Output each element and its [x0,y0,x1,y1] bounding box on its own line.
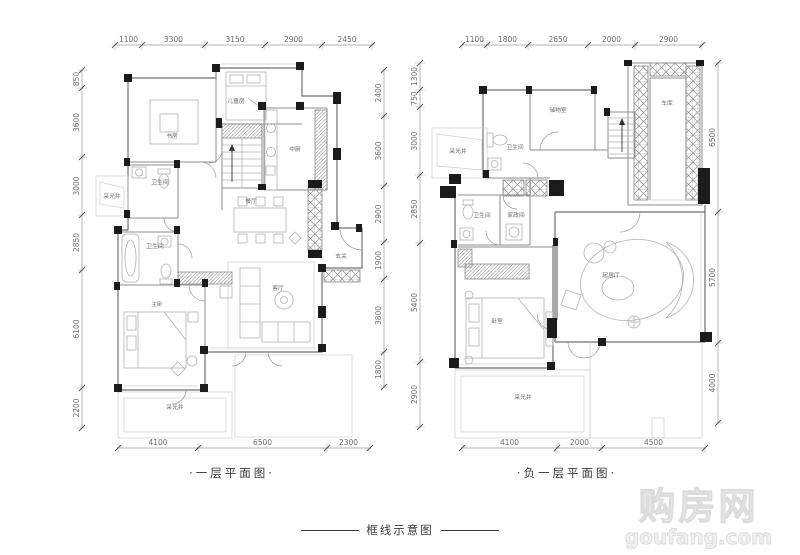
dim-label: 2850 [72,233,81,252]
dim-label: 4100 [148,438,167,447]
bathtub-icon [122,234,139,282]
floorplan-page: 1100330031502900245085036003000285061002… [0,0,800,555]
room-label: 卫生间 [151,178,169,186]
dim-label: 2900 [284,35,303,44]
terrace-outline [235,355,352,437]
basement-floor-caption: ·负一层平面图· [457,465,677,481]
room-label: 儿童房 [227,97,245,105]
dim-label: 750 [410,91,419,106]
dim-label: 2650 [548,35,567,44]
frame-caption-text: 框线示意图 [366,522,434,538]
dim-label: 3000 [72,176,81,195]
first-floor-caption: ·一层平面图· [122,465,342,481]
watermark-url: goufang.com [625,527,772,547]
dim-label: 2000 [602,35,621,44]
basement-light-well-bottom [455,370,590,438]
dim-label: 2900 [374,204,383,223]
kitchen-cabinet-hatch [315,110,327,190]
room-label: 采光井 [103,192,121,200]
dim-label: 850 [72,72,81,87]
dim-label: 3300 [164,35,183,44]
dim-label: 2400 [374,83,383,102]
sunken-courtyard [590,342,702,438]
master-bed [124,312,198,376]
room-label: 卧室 [491,317,503,325]
watermark-cn: 购房网 [625,488,772,525]
room-label: 起居厅 [602,271,620,279]
room-label: 玄关 [335,252,347,260]
room-label: 餐厅 [245,197,257,205]
dim-label: 4100 [500,438,519,447]
laundry-basin [506,224,522,240]
shaft-hatch-1 [503,180,524,196]
room-label: 采光井 [449,147,467,155]
sliding-door [553,240,558,320]
dim-label: 1800 [498,35,517,44]
dim-label: 1100 [465,35,484,44]
light-well-bottom [118,392,232,438]
room-label: 卫生间 [506,143,524,151]
room-label: 客厅 [272,284,284,292]
dim-label: 6100 [72,319,81,338]
dim-label: 1900 [374,251,383,270]
dim-label: 3600 [72,113,81,132]
basement-stairs-icon [608,118,635,154]
room-label: 储物室 [549,106,567,114]
first-floor-plan [96,62,362,438]
room-label: 车库 [661,99,673,107]
room-label: 采光井 [166,403,184,411]
room-label: 卫生间 [146,242,164,250]
dim-label: 1800 [374,360,383,379]
dim-label: 5400 [410,293,419,312]
living-sofa [220,262,314,348]
basement-floor-plan [432,60,712,438]
caption-rule-right [441,530,499,531]
dim-label: 2450 [337,35,356,44]
dim-label: 2300 [339,438,358,447]
dim-label: 5700 [708,268,717,287]
closet-hatch [222,124,262,138]
dim-label: 3800 [374,306,383,325]
dim-label: 3600 [374,141,383,160]
dim-label: 3000 [410,131,419,150]
dim-label: 4500 [644,438,663,447]
dim-label: 3150 [225,35,244,44]
children-bed [226,72,266,120]
dim-label: 1100 [119,35,138,44]
garage-structure [628,63,702,205]
flue-block [549,180,564,196]
dim-label: 2900 [410,385,419,404]
dim-label: 2850 [410,199,419,218]
room-label: 主卧 [151,300,163,308]
shaft-hatch-2 [526,180,547,196]
entry-closet-hatch [324,270,360,282]
room-label: 书房 [166,132,178,140]
dim-label: 2000 [570,438,589,447]
dim-label: 6500 [708,128,717,147]
family-room-rug [561,230,694,330]
dim-label: 2900 [659,35,678,44]
toilet-icon-b-mid [460,200,473,240]
room-label: 中厨 [289,145,301,153]
basement-bed [465,291,553,364]
kitchen-counter [265,110,277,190]
closet-hatch-h [465,264,529,279]
caption-rule-left [301,530,359,531]
dining-table [234,197,301,244]
toilet-icon-b-top [487,133,507,170]
dim-label: 2200 [72,398,81,417]
room-label: 采光井 [514,393,532,401]
room-label: 家政间 [507,211,525,219]
watermark: 购房网 goufang.com [625,488,772,547]
floorplan-canvas: 1100330031502900245085036003000285061002… [0,0,800,555]
dim-label: 4000 [708,373,717,392]
room-label: 卫生间 [473,211,491,219]
dim-label: 1300 [410,67,419,86]
shaft-wall-hatch [308,188,322,250]
stairs-icon [222,138,262,188]
dim-label: 6500 [253,438,272,447]
